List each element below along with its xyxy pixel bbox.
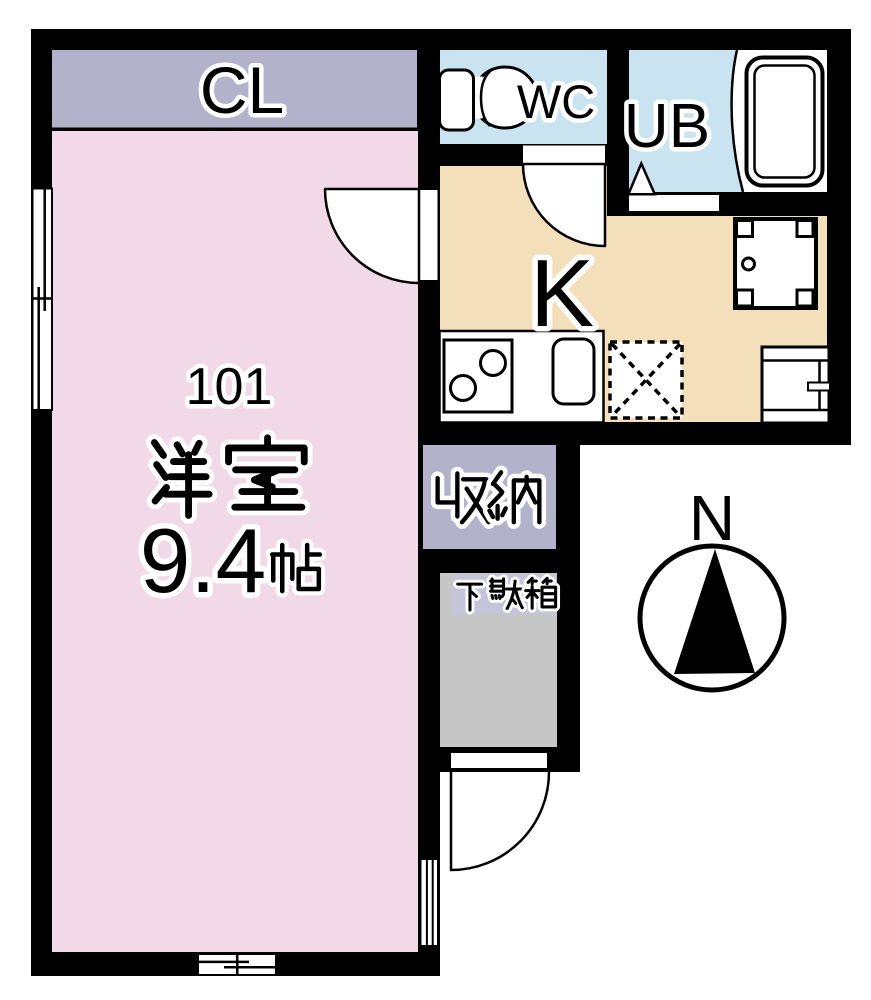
svg-text:9.4: 9.4 [140, 511, 267, 612]
svg-text:101: 101 [186, 358, 273, 416]
svg-text:K: K [530, 240, 594, 347]
svg-text:UB: UB [624, 92, 710, 161]
svg-text:N: N [689, 482, 735, 554]
svg-text:WC: WC [517, 75, 595, 128]
svg-text:CL: CL [200, 53, 284, 127]
